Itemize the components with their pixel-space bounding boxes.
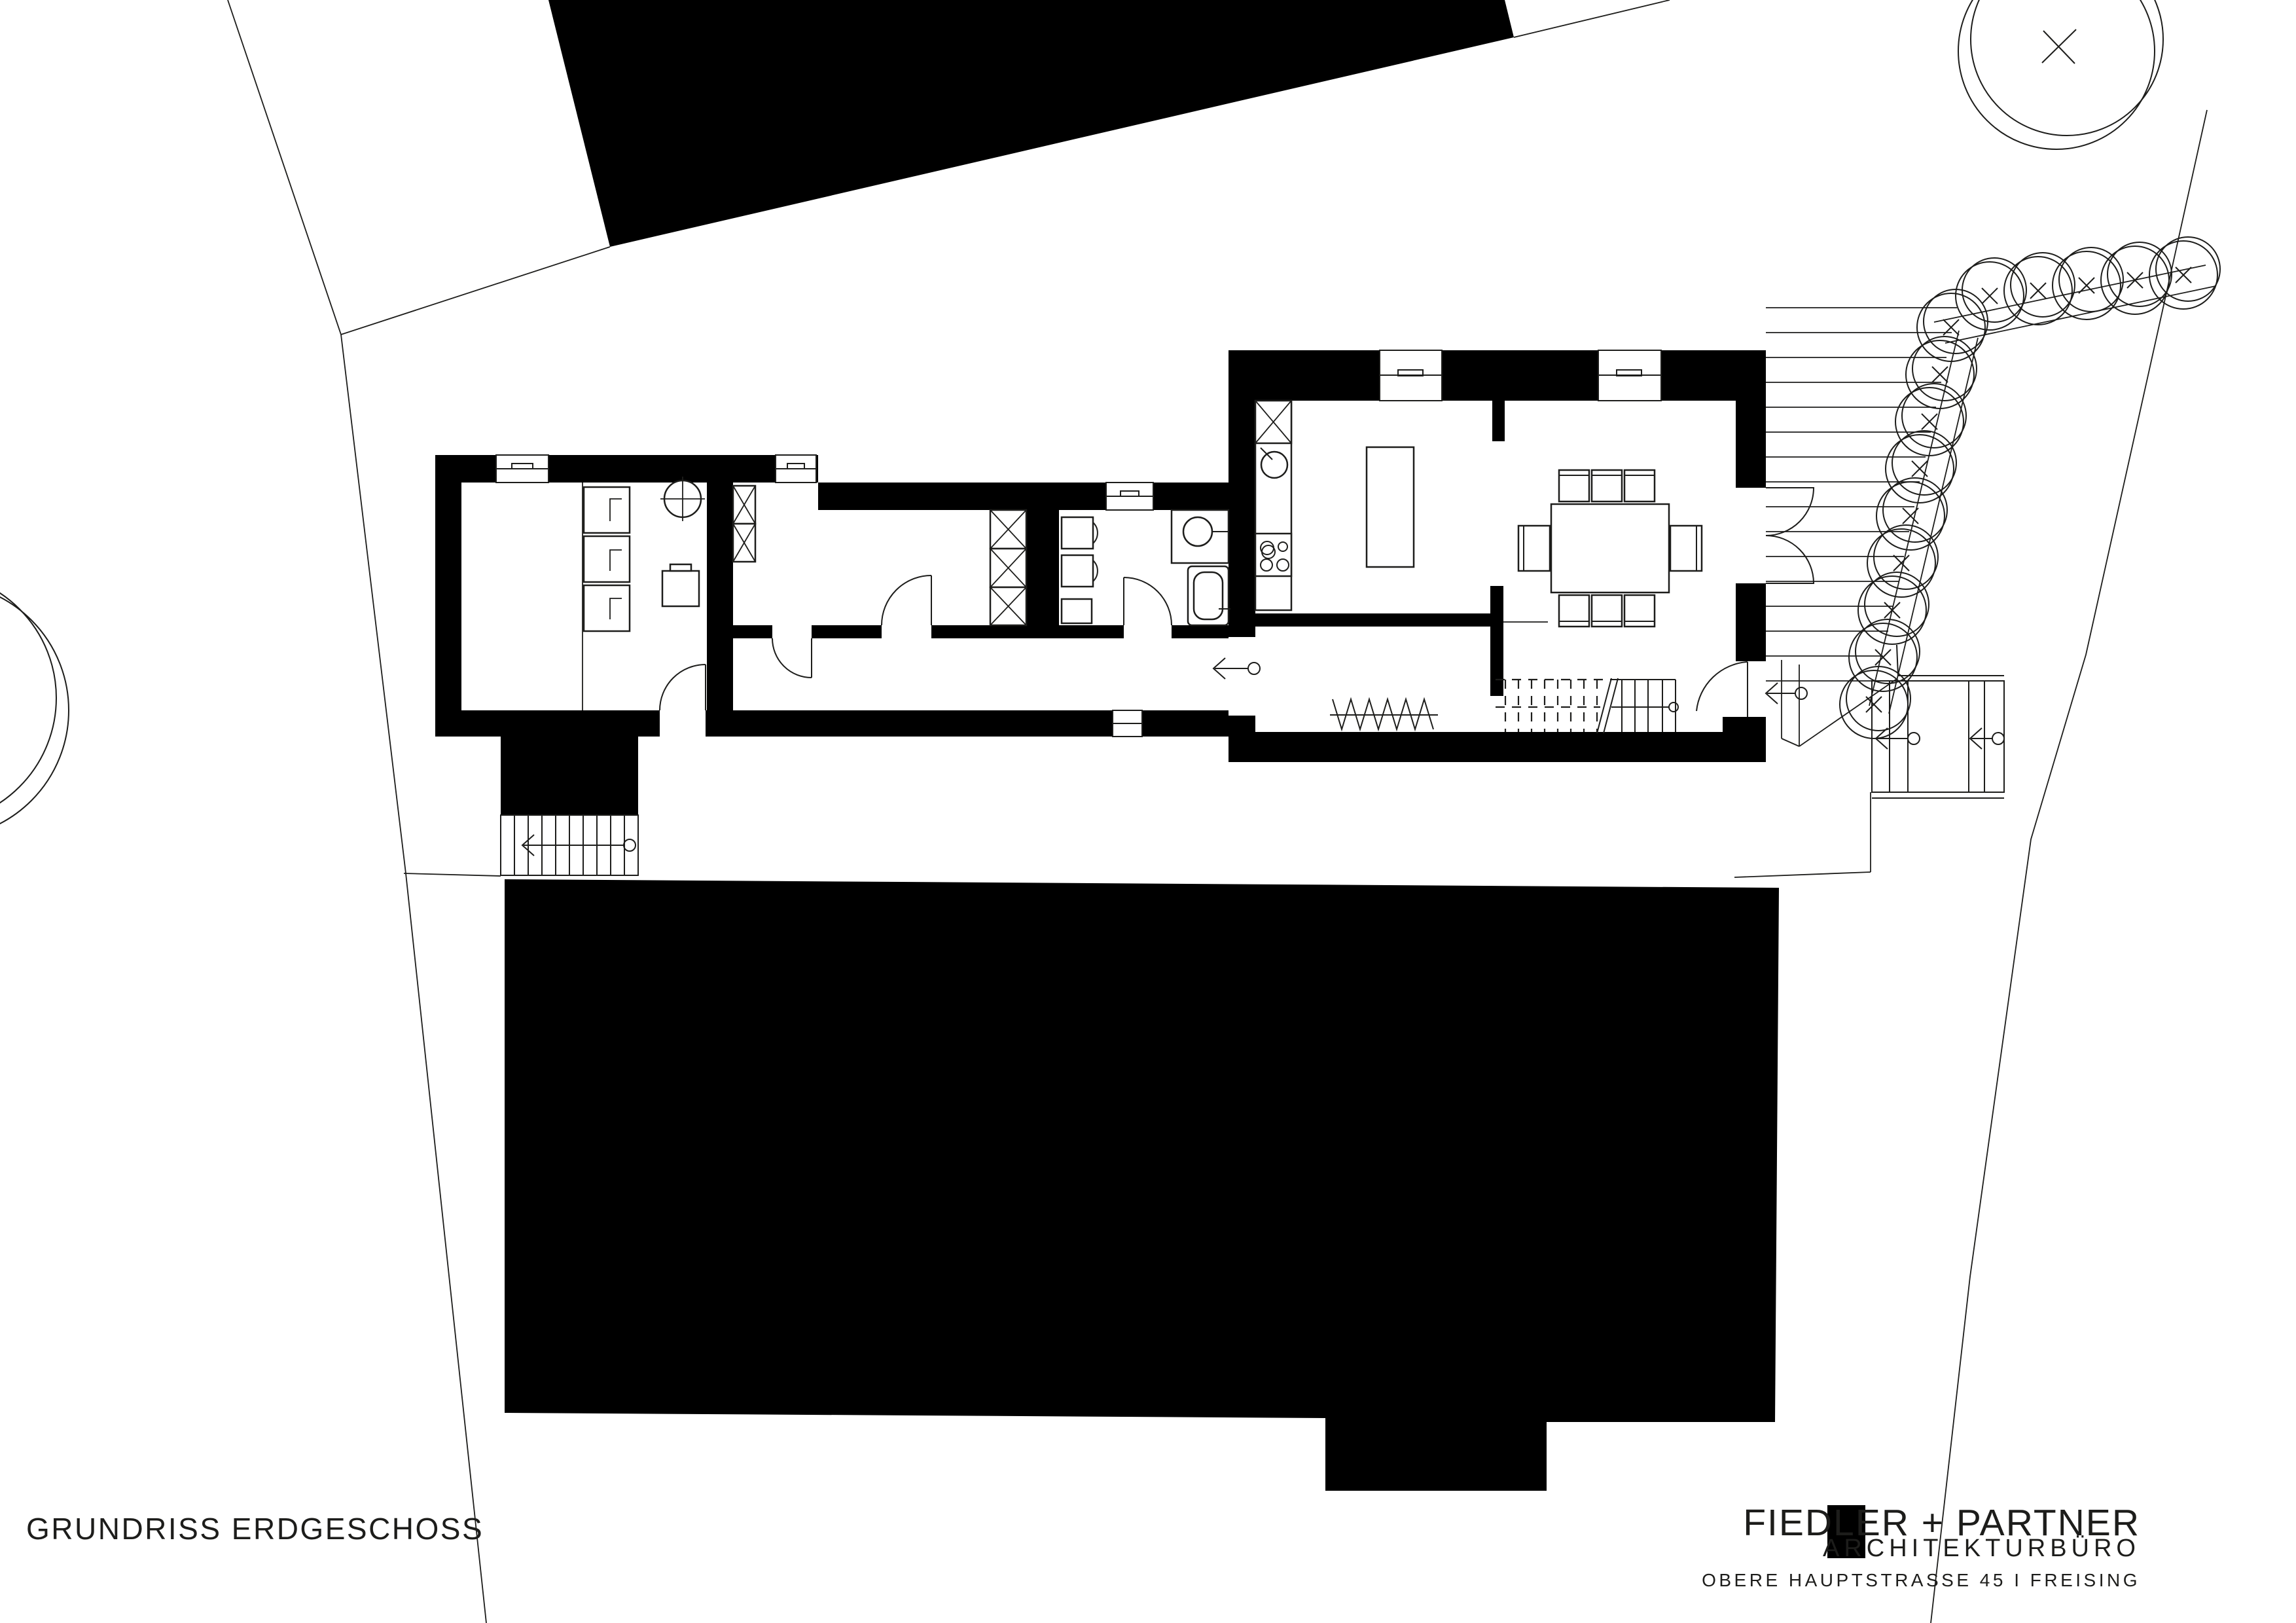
- round-table: [660, 477, 705, 521]
- dining-area: [1518, 470, 1702, 627]
- coat-rack-icon: [1330, 699, 1438, 729]
- dining-chair: [1624, 470, 1655, 501]
- dining-chair: [1559, 595, 1589, 627]
- washbasin-icon: [1172, 510, 1229, 563]
- entrance-arrow-icon: [522, 835, 636, 856]
- door-icon: [882, 575, 931, 625]
- wardrobe-icon: [733, 486, 755, 562]
- site-plan-drawing: [0, 0, 2296, 1623]
- toilet-icon: [1062, 517, 1098, 549]
- dining-chair: [1670, 526, 1702, 571]
- large-tree-icon-top-right: [1958, 0, 2163, 149]
- exterior-stairs-southeast: [1872, 645, 2004, 798]
- neighbor-building-north: [548, 0, 1514, 247]
- shower-base: [1062, 599, 1092, 623]
- tree-row-icons: [1840, 237, 2220, 739]
- sofa: [584, 487, 630, 631]
- dining-chair: [1592, 470, 1622, 501]
- large-tree-icon-left: [0, 572, 69, 838]
- entrance-arrow-icon: [1970, 728, 2004, 749]
- terrace-deck: [1766, 265, 2215, 714]
- dining-chair: [1559, 470, 1589, 501]
- dining-table: [1551, 504, 1669, 593]
- bathroom: [1062, 510, 1230, 625]
- entrance-arrow-icon: [1766, 683, 1807, 704]
- wardrobe-icon: [990, 510, 1026, 625]
- door-icon: [1124, 577, 1172, 625]
- entry-walkway: [1782, 660, 1897, 746]
- interior-staircase: [1496, 678, 1678, 733]
- door-icon: [660, 665, 706, 710]
- side-table: [662, 564, 699, 606]
- kitchen-island: [1367, 447, 1414, 567]
- bathtub-icon: [1188, 566, 1230, 625]
- drawing-sheet: GRUNDRISS ERDGESCHOSS FIEDLER + PARTNER …: [0, 0, 2296, 1623]
- door-icon: [772, 638, 812, 678]
- dining-chair: [1624, 595, 1655, 627]
- stove-icon: [1255, 534, 1291, 576]
- dining-chair: [1592, 595, 1622, 627]
- plan-title: GRUNDRISS ERDGESCHOSS: [26, 1511, 484, 1546]
- firm-address: OBERE HAUPTSTRASSE 45 I FREISING: [1702, 1570, 2140, 1591]
- french-door-icon: [1766, 488, 1814, 583]
- cellar-stairs: [501, 815, 638, 875]
- toilet-icon: [1062, 555, 1098, 587]
- neighbor-building-south: [505, 879, 1779, 1491]
- kitchen-counter: [1255, 401, 1291, 610]
- living-room: [583, 477, 705, 710]
- entrance-arrow-icon: [1876, 728, 1920, 749]
- firm-type: ARCHITEKTURBÜRO: [1823, 1535, 2140, 1563]
- dining-chair: [1518, 526, 1550, 571]
